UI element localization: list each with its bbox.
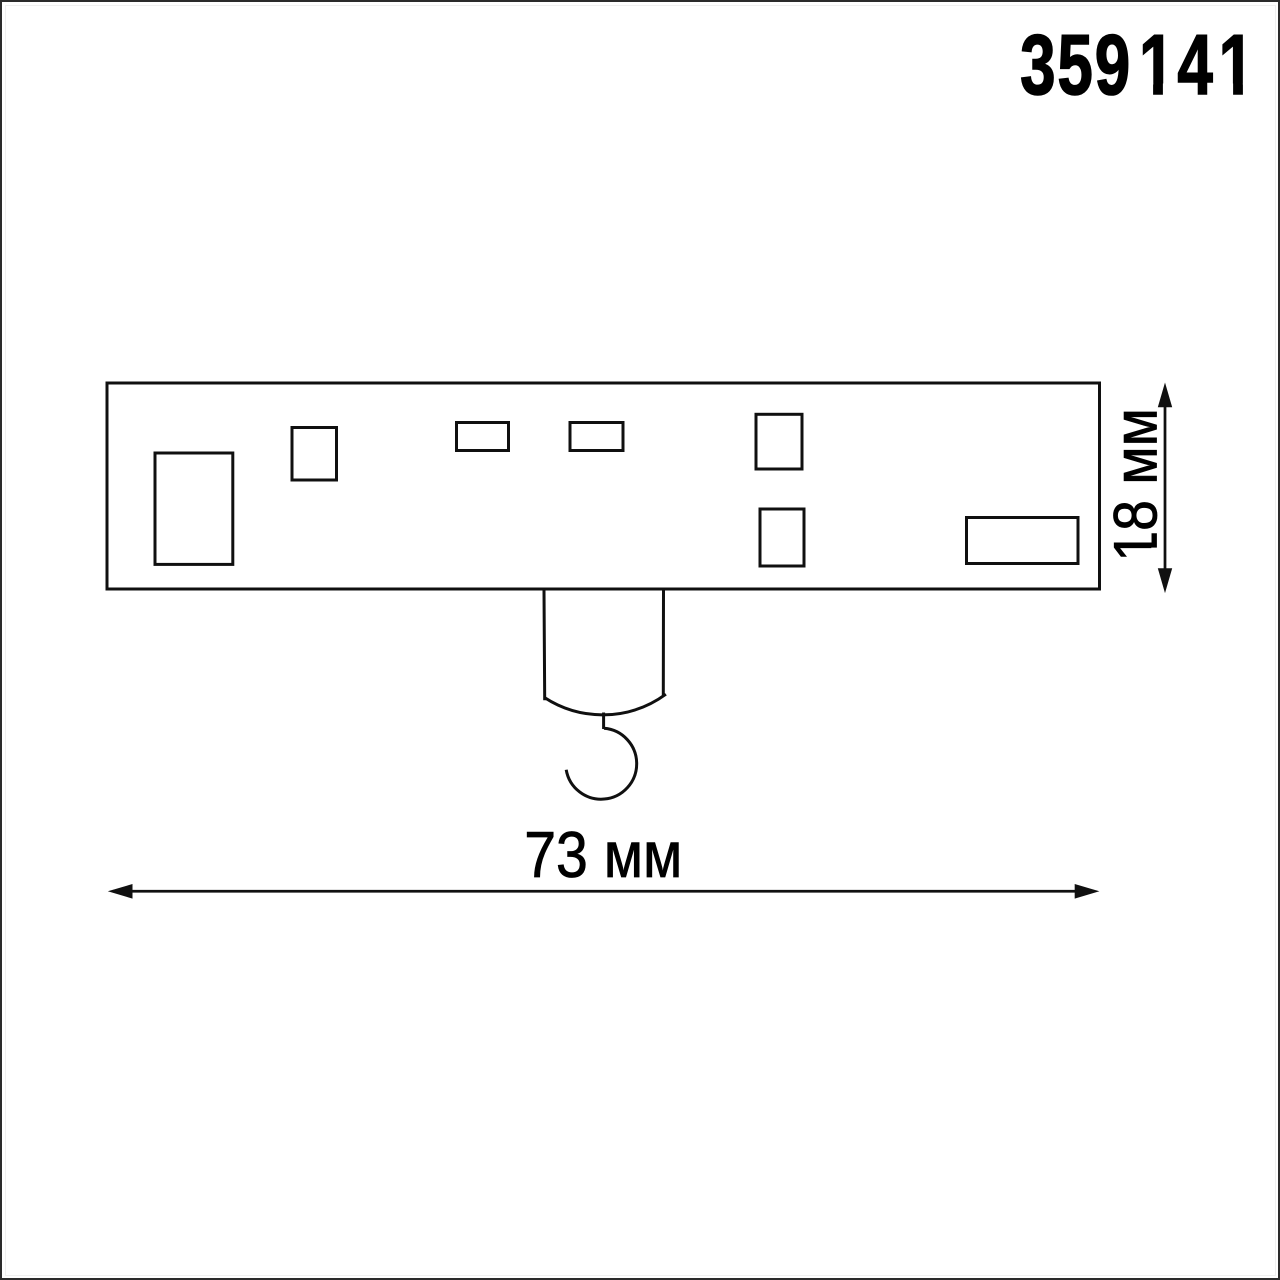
svg-text:18 мм: 18 мм [1102,408,1170,561]
svg-text:73 мм: 73 мм [524,819,682,891]
svg-text:359141: 359141 [1020,17,1256,112]
